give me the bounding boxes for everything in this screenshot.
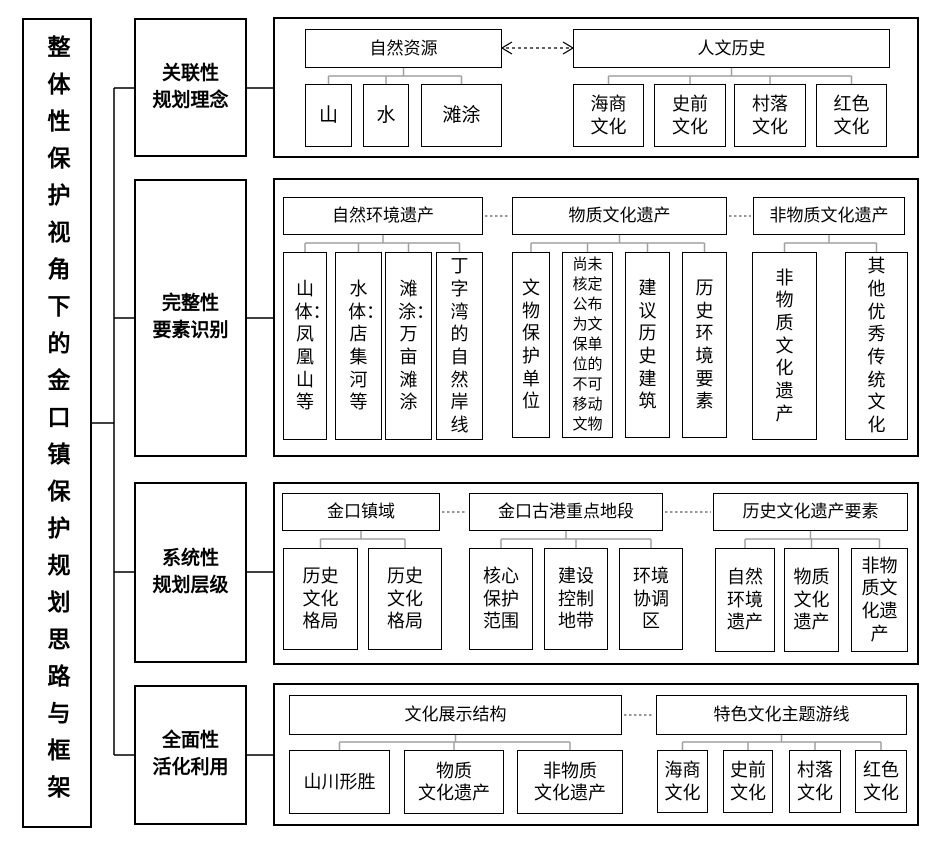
intangible-cultural-heritage-label: 非物质文化遗产: [860, 555, 899, 646]
core-protection-scope-box: 核心保护范围: [469, 548, 533, 650]
mountain-body-label: 山体：凤凰山等: [295, 278, 316, 414]
cultural-display-structure-header: 文化展示结构: [289, 695, 622, 735]
historic-cultural-pattern-label-2: 历史文化格局: [385, 565, 424, 633]
red-culture-box: 红色文化: [816, 84, 887, 147]
tidal-flat-box: 滩涂: [421, 84, 502, 147]
intangible-cultural-heritage-header: 非物质文化遗产: [753, 197, 905, 235]
historic-cultural-pattern-box-2: 历史文化格局: [368, 548, 442, 650]
intangible-cultural-heritage-box: 非物质文化遗产: [851, 548, 908, 652]
unregistered-immovable-relics-box: 尚未核定公布为文保单位的不可移动文物: [562, 252, 613, 438]
maritime-culture-route-label: 海商文化: [663, 759, 702, 804]
village-culture-label: 村落文化: [750, 93, 789, 138]
water-box: 水: [363, 84, 409, 147]
planning-framework-diagram: 整体性保护视角下的金口镇保护规划思路与框架 关联性 规划理念 完整性 要素识别 …: [0, 0, 951, 848]
stage-systematic-levels: 系统性 规划层级: [134, 482, 247, 663]
prehistoric-culture-label: 史前文化: [670, 93, 709, 138]
stage-correlation-concept: 关联性 规划理念: [134, 18, 247, 157]
natural-resources-header: 自然资源: [305, 29, 502, 68]
material-cultural-heritage-header: 物质文化遗产: [512, 197, 727, 235]
unregistered-immovable-relics-label: 尚未核定公布为文保单位的不可移动文物: [571, 255, 604, 436]
mountain-body-box: 山体：凤凰山等: [283, 252, 327, 440]
core-protection-scope-label: 核心保护范围: [481, 565, 520, 633]
mountain-box: 山: [305, 84, 352, 147]
red-culture-route-label: 红色文化: [861, 759, 900, 804]
dingzi-bay-coastline-label: 丁字湾的自然岸线: [449, 255, 470, 436]
intangible-heritage-label: 非物质文化遗产: [774, 267, 795, 426]
maritime-culture-box: 海商文化: [573, 84, 644, 147]
prehistoric-culture-route-box: 史前文化: [723, 750, 773, 813]
water-body-box: 水体：店集河等: [335, 252, 382, 440]
jinkou-ancient-port-header: 金口古港重点地段: [469, 493, 663, 531]
village-culture-route-label: 村落文化: [795, 759, 834, 804]
village-culture-box: 村落文化: [734, 84, 806, 147]
dingzi-bay-coastline-box: 丁字湾的自然岸线: [436, 252, 483, 440]
prehistoric-culture-box: 史前文化: [654, 84, 726, 147]
root-title-box: 整体性保护视角下的金口镇保护规划思路与框架: [22, 18, 92, 828]
natural-environment-heritage-header: 自然环境遗产: [283, 197, 483, 235]
environment-coordination-area-box: 环境协调区: [619, 548, 683, 650]
stage-integrity-elements: 完整性 要素识别: [134, 179, 247, 457]
tidal-flats-box: 滩涂：万亩滩涂: [385, 252, 432, 440]
material-heritage-display-box: 物质 文化遗产: [404, 750, 504, 814]
red-culture-label: 红色文化: [832, 93, 871, 138]
construction-control-zone-label: 建设控制地带: [556, 565, 595, 633]
historic-cultural-pattern-box-1: 历史文化格局: [283, 548, 358, 650]
heritage-protection-unit-label: 文物保护单位: [521, 277, 542, 413]
historic-environment-elements-box: 历史环境要素: [682, 252, 727, 438]
root-title: 整体性保护视角下的金口镇保护规划思路与框架: [40, 35, 74, 812]
stage-comprehensive-utilization: 全面性 活化利用: [134, 685, 247, 825]
other-traditional-culture-label: 其他优秀传统文化: [866, 255, 887, 436]
village-culture-route-box: 村落文化: [789, 750, 841, 813]
maritime-culture-label: 海商文化: [589, 93, 628, 138]
material-cultural-heritage-box: 物质文化遗产: [784, 548, 839, 652]
tidal-flats-label: 滩涂：万亩滩涂: [398, 278, 419, 414]
historic-cultural-pattern-label-1: 历史文化格局: [301, 565, 340, 633]
heritage-protection-unit-box: 文物保护单位: [512, 252, 550, 438]
historic-environment-elements-label: 历史环境要素: [694, 277, 715, 413]
intangible-heritage-box: 非物质文化遗产: [752, 252, 817, 440]
historic-cultural-heritage-elements-header: 历史文化遗产要素: [713, 493, 908, 531]
other-traditional-culture-box: 其他优秀传统文化: [845, 252, 908, 440]
prehistoric-culture-route-label: 史前文化: [728, 759, 767, 804]
themed-culture-tour-routes-header: 特色文化主题游线: [656, 695, 907, 735]
maritime-culture-route-box: 海商文化: [657, 750, 708, 813]
jinkou-town-area-header: 金口镇域: [282, 493, 440, 531]
water-body-label: 水体：店集河等: [348, 278, 369, 414]
natural-environment-heritage-label: 自然环境遗产: [725, 566, 764, 634]
construction-control-zone-box: 建设控制地带: [544, 548, 608, 650]
material-cultural-heritage-label: 物质文化遗产: [792, 566, 831, 634]
proposed-historic-buildings-box: 建议历史建筑: [625, 252, 670, 438]
intangible-heritage-display-box: 非物质 文化遗产: [517, 750, 623, 814]
red-culture-route-box: 红色文化: [855, 750, 907, 813]
environment-coordination-area-label: 环境协调区: [631, 565, 670, 633]
humanistic-history-header: 人文历史: [573, 29, 890, 68]
landscape-scenery-box: 山川形胜: [289, 750, 390, 814]
proposed-historic-buildings-label: 建议历史建筑: [637, 277, 658, 413]
natural-environment-heritage-box: 自然环境遗产: [715, 548, 775, 652]
